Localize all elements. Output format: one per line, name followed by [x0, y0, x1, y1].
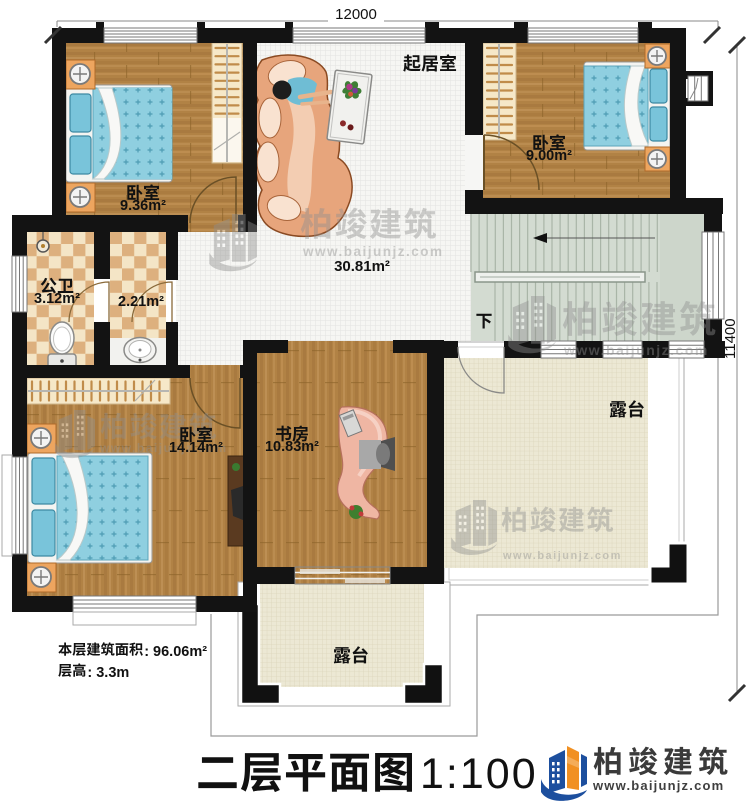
svg-text:www.baijunjz.com: www.baijunjz.com — [302, 244, 444, 259]
svg-text:1:100: 1:100 — [420, 750, 538, 798]
svg-text:9.00m²: 9.00m² — [526, 148, 572, 164]
svg-text:9.36m²: 9.36m² — [120, 198, 166, 214]
svg-text:: 96.06m²: : 96.06m² — [144, 644, 207, 660]
svg-text:14.14m²: 14.14m² — [169, 440, 223, 456]
svg-text:www.baijunjz.com: www.baijunjz.com — [592, 778, 724, 793]
svg-text:www.baijunjz.com: www.baijunjz.com — [502, 550, 622, 562]
svg-text:www.baijunjz.com: www.baijunjz.com — [563, 342, 709, 358]
svg-text:12000: 12000 — [335, 6, 377, 23]
svg-text:10.83m²: 10.83m² — [265, 439, 319, 455]
svg-text:30.81m²: 30.81m² — [334, 258, 390, 275]
svg-text:3.12m²: 3.12m² — [34, 291, 80, 307]
svg-text:2.21m²: 2.21m² — [118, 294, 164, 310]
svg-text:: 3.3m: : 3.3m — [87, 665, 129, 681]
svg-text:11400: 11400 — [722, 318, 739, 359]
